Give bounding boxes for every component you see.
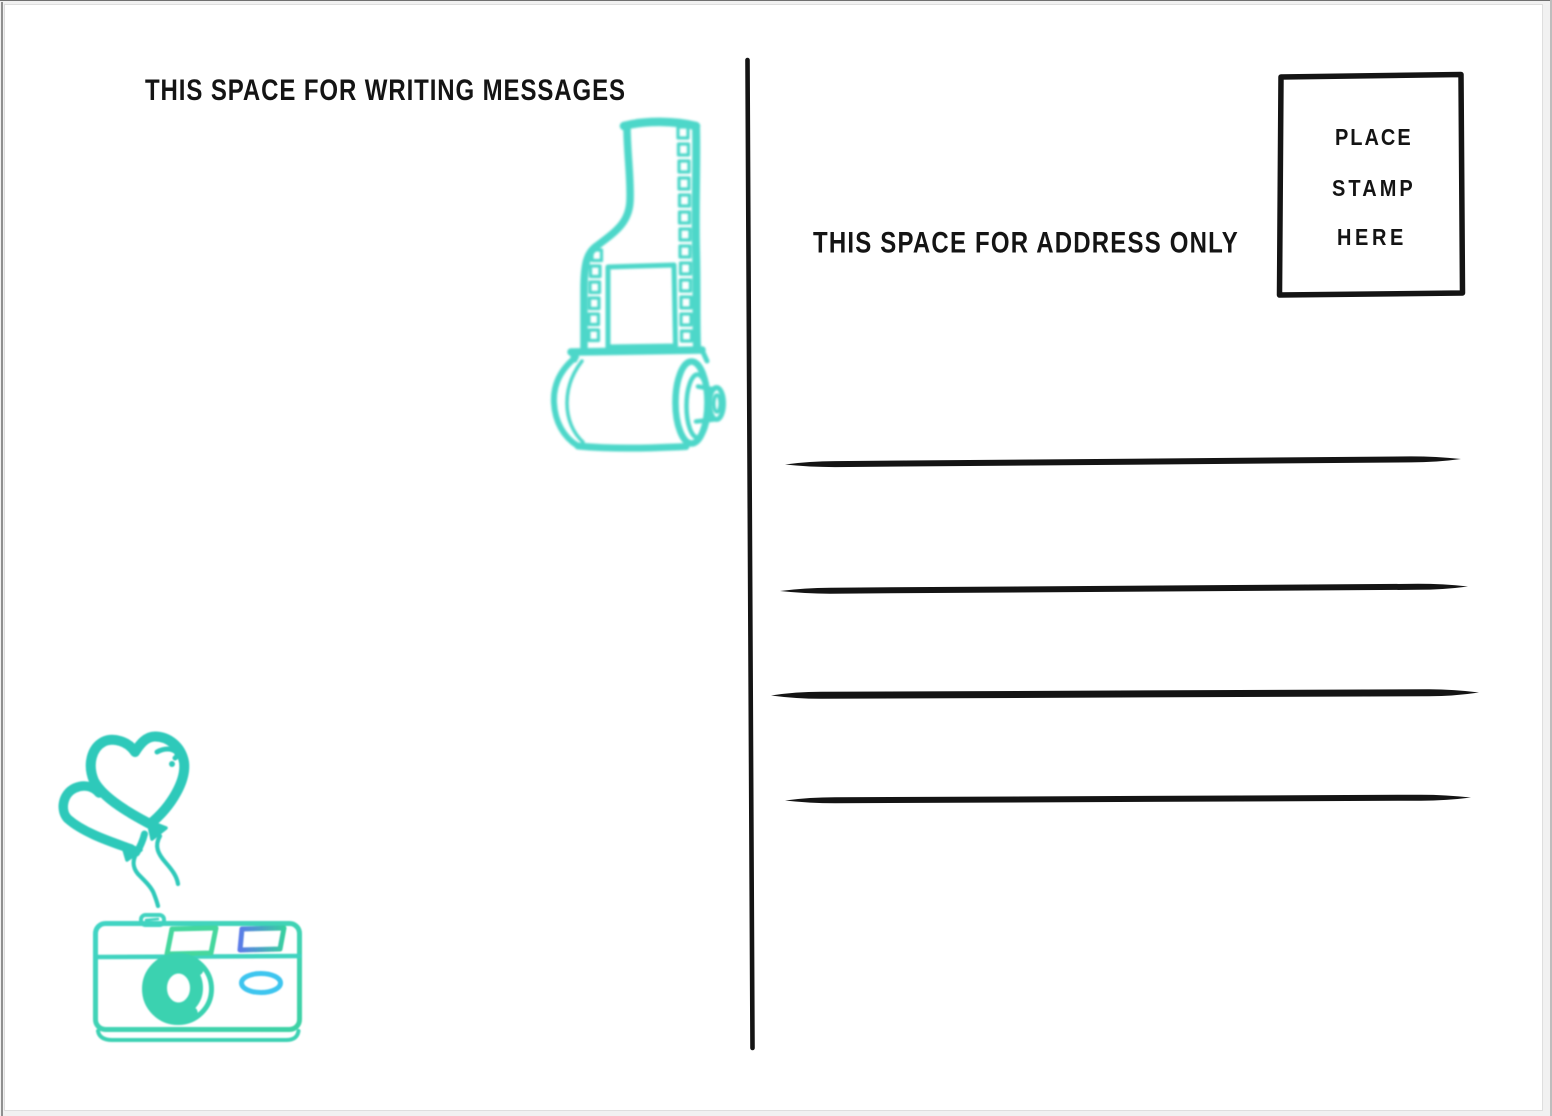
- svg-text:THIS SPACE FOR ADDRESS ONLY: THIS SPACE FOR ADDRESS ONLY: [813, 225, 1238, 259]
- svg-text:HERE: HERE: [1337, 223, 1403, 250]
- svg-text:THIS SPACE FOR WRITING MESSAGE: THIS SPACE FOR WRITING MESSAGES: [145, 72, 625, 106]
- svg-text:PLACE: PLACE: [1335, 123, 1411, 150]
- svg-text:STAMP: STAMP: [1332, 174, 1413, 201]
